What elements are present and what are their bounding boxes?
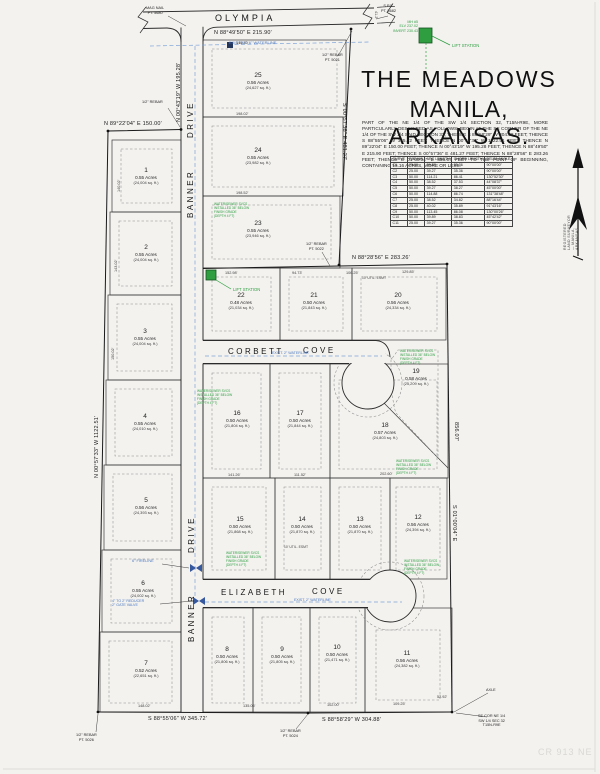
point-label: SE COR NE 1/4 <box>478 714 505 719</box>
lot-sqft: (24,803 sq. ft.) <box>343 435 427 440</box>
utility-note: WATER/SEWER SVCSINSTALLED 36" BELOWFINIS… <box>404 560 439 575</box>
lot-label-23: 230.55 Acres(23,946 sq. ft.) <box>216 220 300 238</box>
lot-label-4: 40.55 Acres(24,010 sq. ft.) <box>103 413 187 431</box>
point-label: 1/2" REBAR <box>142 100 163 105</box>
dim-label: 52.92' <box>437 695 447 699</box>
lot-label-6: 60.55 Acres(24,002 sq. ft.) <box>101 580 185 598</box>
col-curve: CURVE <box>391 157 408 163</box>
col-delta: DELTA ANGLE <box>485 157 513 163</box>
dim-label: 198.02' <box>236 112 248 116</box>
lot-label-18: 180.57 Acres(24,803 sq. ft.) <box>343 422 427 440</box>
note-line: (DEPTH 4 FT) <box>197 402 232 406</box>
lot-sqft: (24,002 sq. ft.) <box>101 593 185 598</box>
lot-number: 3 <box>103 328 187 335</box>
bearing-west-jog: N 89°22'04" E 150.00' <box>104 121 162 127</box>
bearing-mid-east: N 88°28'56" E 283.26' <box>352 255 410 261</box>
point-se-corner: SE COR NE 1/4SW 1/4 SEC 32T15N-R9E <box>478 714 505 728</box>
fireline-label: 6" FIRELINE <box>132 559 154 563</box>
bearing-bottom-left: S 88°55'06" W 345.72' <box>148 716 207 722</box>
point-label: 1/2" REBAR <box>280 729 301 734</box>
point-mag-nail: MAG NAILPT. 5680 <box>146 6 164 15</box>
dim-label: 140.02' <box>117 180 121 192</box>
utility-note: WATER/SEWER SVCSINSTALLED 36" BELOWFINIS… <box>214 203 249 218</box>
point-number: PT. 5021 <box>322 58 343 63</box>
col-arc: ARC LENGTH <box>425 157 452 163</box>
point-label: AXLE <box>486 688 496 693</box>
dim-label: 41.2' <box>374 11 378 19</box>
lot-sqft: (24,010 sq. ft.) <box>103 426 187 431</box>
bearing-bottom-right: S 88°58'29" W 304.88' <box>322 717 381 723</box>
point-rebar-5024: 1/2" REBARPT. 5024 <box>280 729 301 738</box>
col-radius: RADIUS <box>407 157 425 163</box>
lot-sqft: (21,868 sq. ft.) <box>198 529 282 534</box>
page-title: THE MEADOWS <box>343 66 575 93</box>
point-rebar-5022: 1/2" REBARPT. 5022 <box>306 242 327 251</box>
dim-label: 111.52' <box>294 473 306 477</box>
curve-cell: 39.27 <box>425 221 452 227</box>
lot-sqft: (24,393 sq. ft.) <box>104 510 188 515</box>
util-esmt-label: 10' UTIL. ESMT <box>284 545 308 549</box>
street-elizabeth-cove: COVE <box>312 587 345 596</box>
curve-cell: C11 <box>391 221 408 227</box>
lot-label-3: 30.55 Acres(24,004 sq. ft.) <box>103 328 187 346</box>
note-line: 2" GATE VALVE <box>112 603 144 607</box>
dim-label: 202.60' <box>380 472 392 476</box>
lot-sqft: (24,004 sq. ft.) <box>103 341 187 346</box>
lot-number: 2 <box>104 244 188 251</box>
street-elizabeth: ELIZABETH <box>221 588 287 597</box>
lot-number: 18 <box>343 422 427 429</box>
bearing-east-upper: S 00°57'36" E 481.27' <box>341 103 347 161</box>
street-banner-drive-upper: DRIVE <box>186 101 195 138</box>
bearing-banner-upper: N 00°43'19" W 195.28' <box>176 63 182 122</box>
point-number: PT. 5680 <box>146 11 164 16</box>
reducer-label: 4" TO 2" REDUCER2" GATE VALVE <box>112 599 144 608</box>
note-line: (DEPTH 4 FT) <box>226 564 261 568</box>
lot-number: 19 <box>374 368 458 375</box>
lot-number: 1 <box>104 167 188 174</box>
dim-label: 94.73' <box>292 271 302 275</box>
lot-sqft: (24,334 sq. ft.) <box>356 305 440 310</box>
curve-cell: 90°00'00" <box>485 221 513 227</box>
dim-label: 135.06' <box>243 704 255 708</box>
curve-cell: 35.36 <box>452 221 485 227</box>
lot-sqft: (21,844 sq. ft.) <box>258 423 342 428</box>
lot-number: 20 <box>356 292 440 299</box>
lot-sqft: (21,034 sq. ft.) <box>199 305 283 310</box>
lot-sqft: (23,982 sq. ft.) <box>216 160 300 165</box>
lot-label-21: 210.50 Acres(21,843 sq. ft.) <box>272 292 356 310</box>
point-label: 1/2" REBAR <box>76 733 97 738</box>
utility-note: WATER/SEWER SVCSINSTALLED 36" BELOWFINIS… <box>197 390 232 405</box>
street-banner-drive-lower: DRIVE <box>187 516 196 553</box>
point-rebar-jog: 1/2" REBAR <box>142 100 163 105</box>
lot-label-24: 240.55 Acres(23,982 sq. ft.) <box>216 147 300 165</box>
lot-sqft: (21,843 sq. ft.) <box>272 305 356 310</box>
lot-number: 23 <box>216 220 300 227</box>
point-label: T15N-R9E <box>478 723 505 728</box>
bearing-east-dist: 856.07' <box>453 422 459 441</box>
note-line: (DEPTH 4 FT) <box>400 362 435 366</box>
lot-label-5: 50.56 Acres(24,393 sq. ft.) <box>104 497 188 515</box>
point-number: PT. 5022 <box>306 247 327 252</box>
lot-label-15: 150.50 Acres(21,868 sq. ft.) <box>198 516 282 534</box>
scan-watermark: CR 913 NE <box>538 747 593 757</box>
dim-label: 150.02' <box>111 348 115 360</box>
lot-label-11: 110.56 Acres(24,382 sq. ft.) <box>365 650 449 668</box>
point-label: 1/2" REBAR <box>306 242 327 247</box>
note-line: (DEPTH 4 FT) <box>404 572 439 576</box>
bearing-olympia: N 88°49'50" E 215.90' <box>214 30 272 36</box>
street-banner-lower: BANNER <box>187 594 196 642</box>
point-axle: AXLE <box>486 688 496 693</box>
point-label: 1/2" REBAR <box>322 53 343 58</box>
lift-station-label-top: LIFT STATION <box>452 43 479 48</box>
ls-detail-line: INVERT 230.43 <box>386 29 418 33</box>
plat-sheet: THE MEADOWS MANILA, ARKANSAS. PART OF TH… <box>0 0 600 774</box>
lot-number: 11 <box>365 650 449 657</box>
curve-cell: 25.00 <box>407 221 425 227</box>
lot-number: 7 <box>104 660 188 667</box>
lot-label-20: 200.56 Acres(24,334 sq. ft.) <box>356 292 440 310</box>
dim-label: 148.02' <box>138 704 150 708</box>
lot-number: 15 <box>198 516 282 523</box>
point-number: PT. 5682 <box>381 9 396 14</box>
lot-number: 22 <box>199 292 283 299</box>
street-olympia: OLYMPIA <box>215 13 275 23</box>
lot-number: 6 <box>101 580 185 587</box>
dim-label: 109.25' <box>393 702 405 706</box>
dim-label: 102.00' <box>327 703 339 707</box>
lot-label-25: 250.56 Acres(24,627 sq. ft.) <box>216 72 300 90</box>
curve-table-body: C125.0039.2735.3690°00'00"C225.0039.2735… <box>391 162 513 226</box>
lot-sqft: (24,382 sq. ft.) <box>365 663 449 668</box>
lot-label-17: 170.50 Acres(21,844 sq. ft.) <box>258 410 342 428</box>
bearing-west: N 00°57'33" W 1122.51' <box>94 416 100 478</box>
lot-number: 17 <box>258 410 342 417</box>
note-line: (DEPTH 4 FT) <box>214 215 249 219</box>
util-esmt-label: 10' UTIL. ESMT <box>362 276 386 280</box>
point-rebar-5026: 1/2" REBARPT. 5026 <box>76 733 97 742</box>
point-number: PT. 5024 <box>280 734 301 739</box>
curve-table: CURVE RADIUS ARC LENGTH CHORD LENGTH DEL… <box>390 156 513 227</box>
col-chord: CHORD LENGTH <box>452 157 485 163</box>
point-label: MAG NAIL <box>146 6 164 11</box>
curve-row: C1125.0039.2735.3690°00'00" <box>391 221 513 227</box>
lot-number: 4 <box>103 413 187 420</box>
lot-sqft: (24,627 sq. ft.) <box>216 85 300 90</box>
exist-2in-waterline-label: EXIST. 2" WATERLINE <box>294 598 331 602</box>
lift-station-detail: MH #5 ELV 237.02 INVERT 230.43 <box>386 20 418 33</box>
lot-number: 24 <box>216 147 300 154</box>
dim-label: 143.02' <box>114 260 118 272</box>
utility-note: WATER/SEWER SVCSINSTALLED 36" BELOWFINIS… <box>396 460 431 475</box>
lot-label-19: 190.58 Acres(25,209 sq. ft.) <box>374 368 458 386</box>
dim-label: 106.25' <box>346 271 358 275</box>
lift-station-label-map: LIFT STATION <box>233 287 260 292</box>
utility-note: WATER/SEWER SVCSINSTALLED 36" BELOWFINIS… <box>400 350 435 365</box>
lot-sqft: (23,946 sq. ft.) <box>216 233 300 238</box>
dim-label: 198.52' <box>236 191 248 195</box>
lot-label-22: 220.48 Acres(21,034 sq. ft.) <box>199 292 283 310</box>
note-line: (DEPTH 4 FT) <box>396 472 431 476</box>
surveyor-stamp: REGISTERED LAND SURVEYOR — MANILA, ARKAN… <box>563 213 579 250</box>
lot-number: 25 <box>216 72 300 79</box>
lot-number: 5 <box>104 497 188 504</box>
dim-label: 152.98' <box>225 271 237 275</box>
dim-label: 146.70' <box>236 41 248 45</box>
point-rebar-5021: 1/2" REBARPT. 5021 <box>322 53 343 62</box>
point-number: PT. 5026 <box>76 738 97 743</box>
dim-label: 141.26' <box>228 473 240 477</box>
lot-sqft: (22,651 sq. ft.) <box>104 673 188 678</box>
exist-2in-waterline-label: EXIST. 2" WATERLINE <box>272 351 309 355</box>
lot-number: 21 <box>272 292 356 299</box>
lot-sqft: (25,209 sq. ft.) <box>374 381 458 386</box>
dim-label: 129.85' <box>402 270 414 274</box>
lot-label-7: 70.52 Acres(22,651 sq. ft.) <box>104 660 188 678</box>
utility-note: WATER/SEWER SVCSINSTALLED 36" BELOWFINIS… <box>226 552 261 567</box>
point-sps: S.P.S.PT. 5682 <box>381 4 396 13</box>
